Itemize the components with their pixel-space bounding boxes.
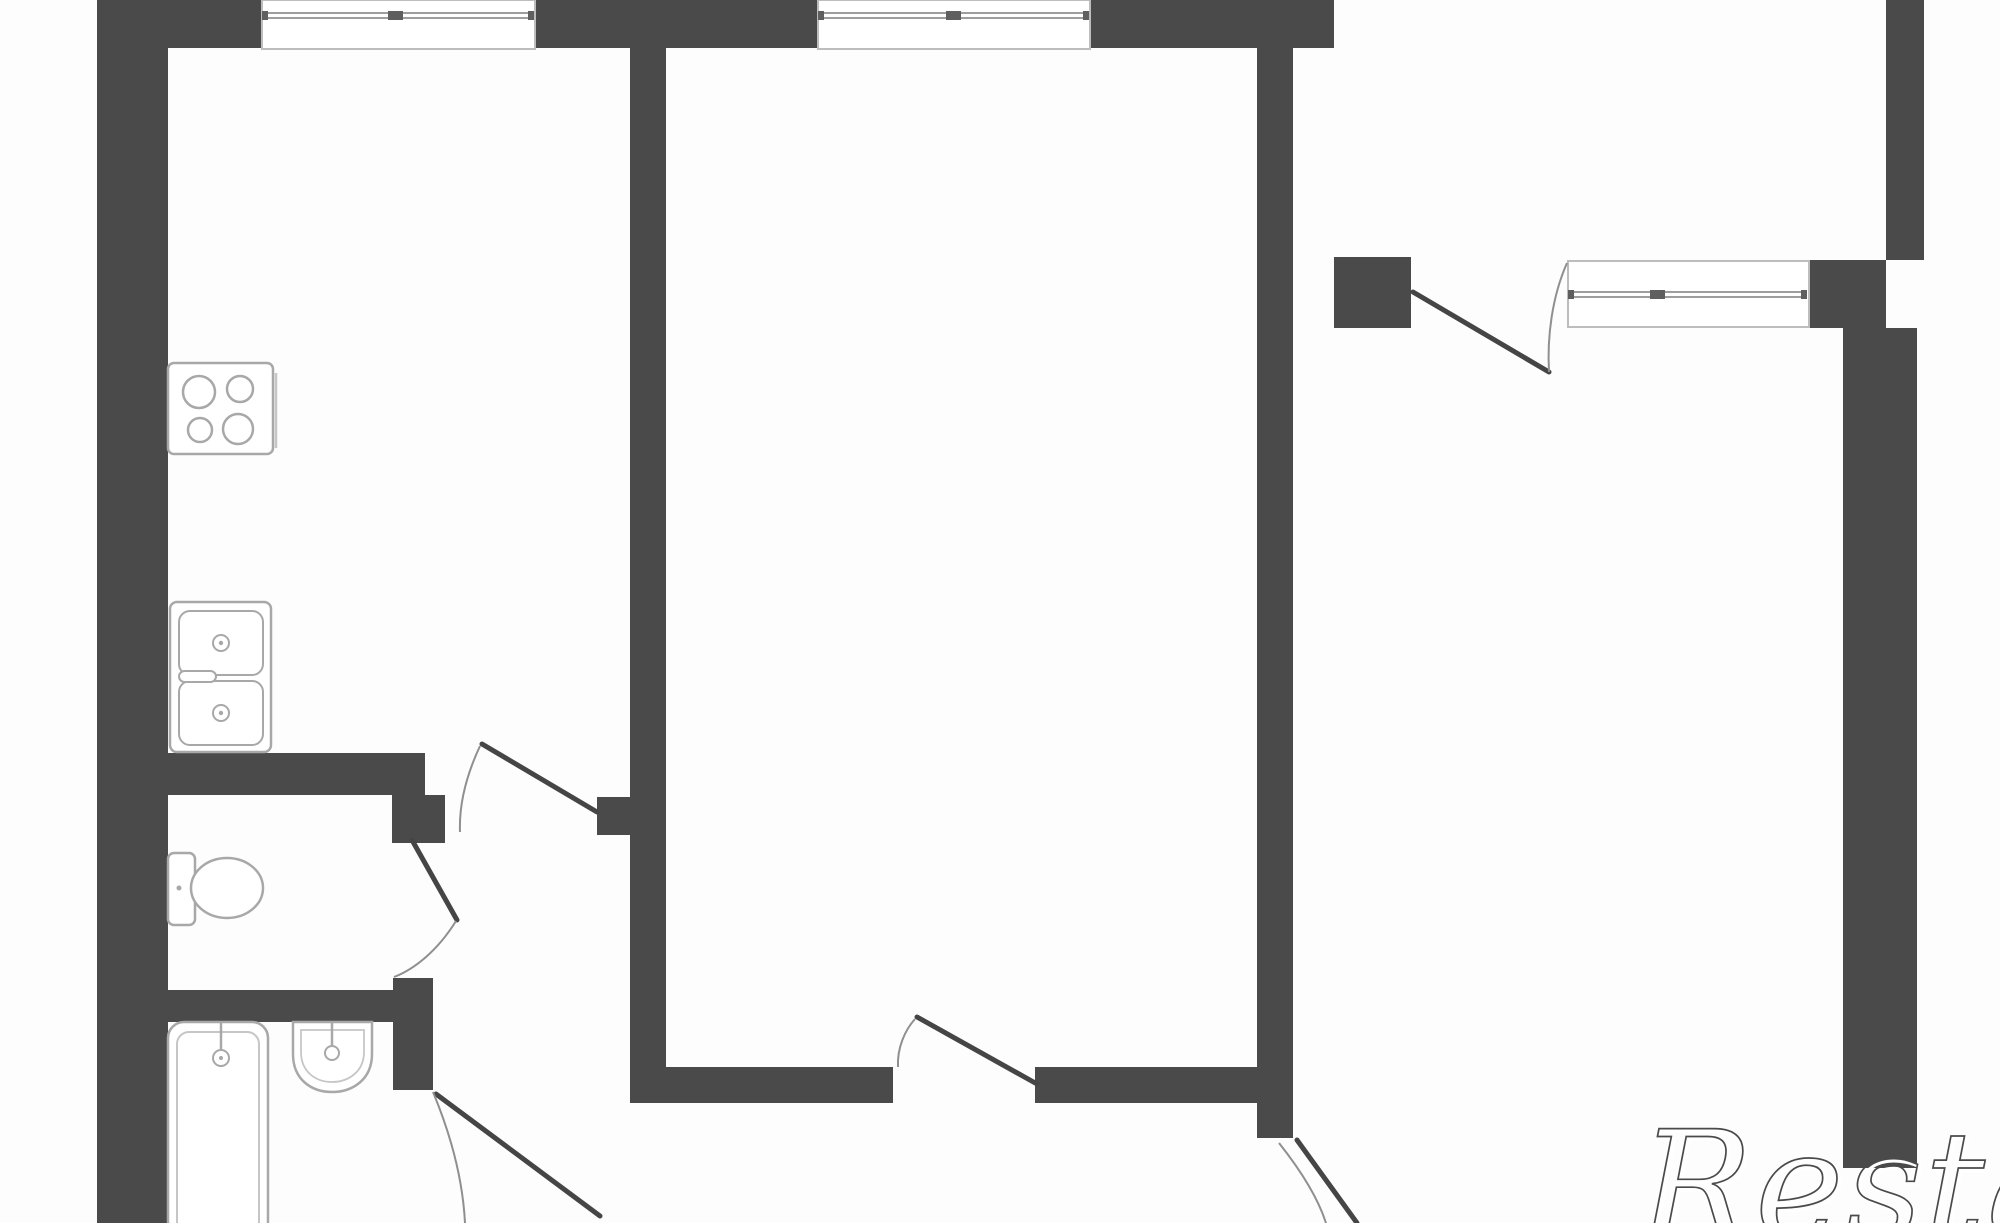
rightroom-door-jamb [1334, 257, 1411, 328]
right-outer-wall-upper [1886, 0, 1924, 260]
door-leaf [917, 1017, 1037, 1084]
sink-drain-dot [219, 711, 223, 715]
entry-door-swing [1279, 1140, 1357, 1223]
sink-drain-dot [219, 641, 223, 645]
door-arc [394, 921, 456, 977]
door-leaf [436, 1094, 600, 1216]
wc-door-jamb [392, 795, 445, 843]
door-leaf [412, 840, 457, 920]
door-leaf [482, 744, 597, 812]
window-end-cap [262, 11, 268, 20]
kitchen-livingroom-wall [630, 48, 666, 1100]
washbasin [293, 1022, 372, 1092]
toilet-tank-dot [177, 886, 182, 891]
kitchen-door-jamb [597, 797, 633, 835]
window-box [1568, 261, 1809, 327]
hall-south-wall-east [1035, 1067, 1257, 1103]
basin-tap [325, 1046, 339, 1060]
window-box [262, 0, 535, 49]
livingroom-right-wall [1257, 48, 1293, 1138]
floor-plan-page: RestateRestate [0, 0, 2000, 1223]
hall-south-wall-west [630, 1067, 893, 1103]
window-end-cap [528, 11, 534, 20]
window-center-tick [1650, 290, 1665, 299]
bathroom-door-swing [433, 1092, 600, 1223]
window-box [818, 0, 1090, 49]
toilet-bowl [191, 858, 263, 918]
kitchen-wc-wall [140, 753, 425, 795]
watermark: RestateRestate [1637, 1100, 2000, 1223]
stove-body [168, 363, 273, 454]
kitchen-window [262, 0, 535, 49]
rightroom-window [1568, 261, 1809, 327]
wc-door-swing [394, 840, 457, 977]
rightroom-door-swing [1413, 263, 1567, 372]
door-leaf [1413, 292, 1549, 372]
bathroom-door-jamb [393, 978, 433, 1090]
bathtub [168, 1022, 268, 1223]
floor-plan-drawing: RestateRestate [0, 0, 2000, 1223]
window-end-cap [1083, 11, 1089, 20]
tub-tap-dot [219, 1056, 223, 1060]
livingroom-window [818, 0, 1090, 49]
sink-faucet [179, 671, 216, 682]
kitchen-sink [170, 602, 271, 752]
window-end-cap [1801, 290, 1807, 299]
top-wall-center [535, 0, 818, 48]
door-arc [1279, 1143, 1326, 1223]
kitchen-door-swing [460, 744, 597, 832]
top-wall-west [97, 0, 262, 48]
livingroom-door-swing [898, 1017, 1037, 1084]
window-end-cap [1568, 290, 1574, 299]
stove [168, 363, 276, 454]
rightroom-window-pier [1809, 260, 1886, 328]
wc-bathroom-wall [140, 990, 393, 1022]
window-end-cap [818, 11, 824, 20]
door-arc [898, 1019, 915, 1067]
door-arc [1549, 263, 1567, 372]
top-wall-east [1090, 0, 1334, 48]
toilet [168, 853, 263, 925]
left-outer-wall [97, 0, 168, 1223]
window-center-tick [388, 11, 403, 20]
window-center-tick [946, 11, 961, 20]
door-arc [460, 746, 480, 832]
right-outer-wall-lower [1843, 328, 1917, 1168]
watermark-text: Restate [1637, 1100, 2000, 1223]
